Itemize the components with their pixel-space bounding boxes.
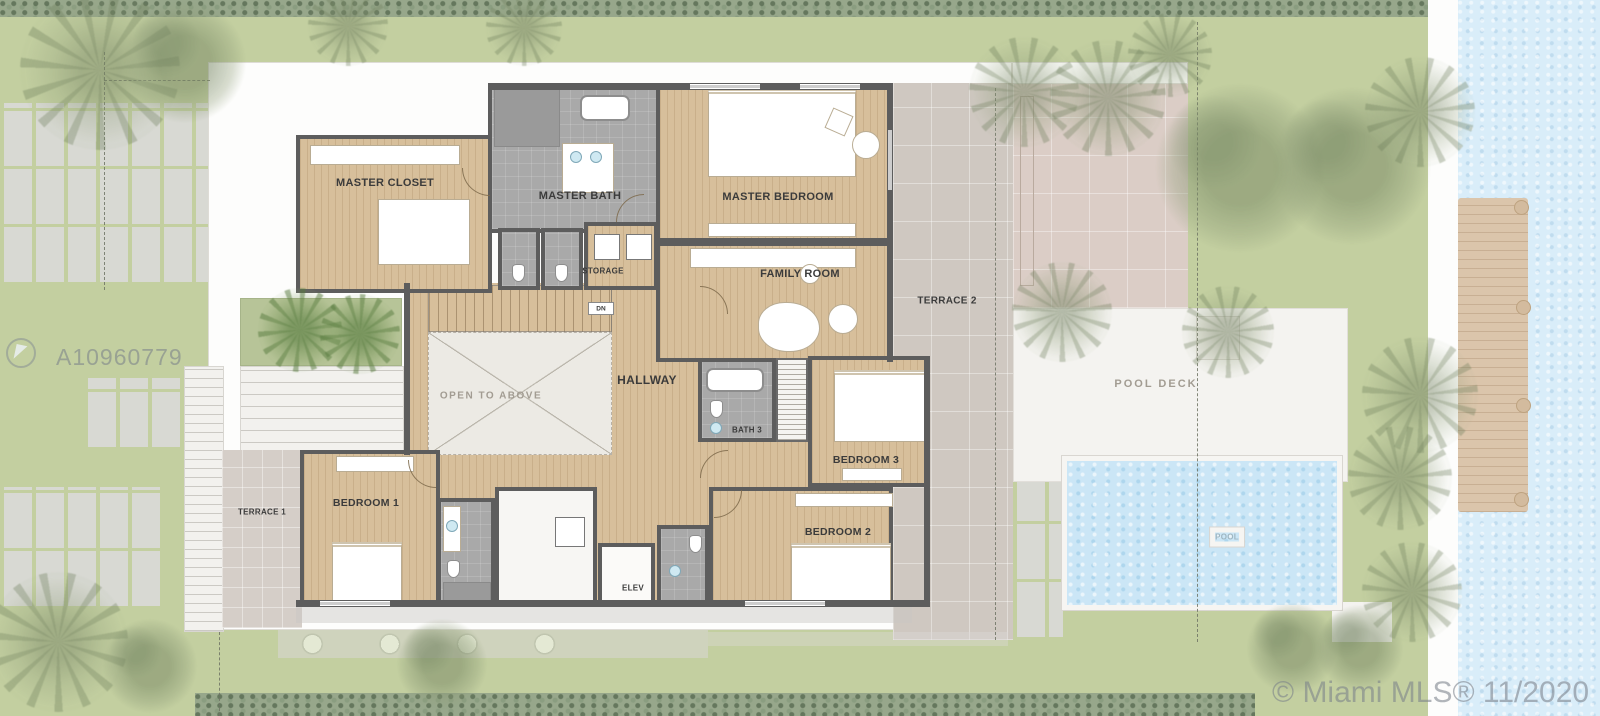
pool-deck-label: POOL DECK	[1114, 378, 1197, 390]
room-bedroom-3	[808, 356, 930, 487]
room-bath-1	[437, 498, 495, 607]
bed	[332, 542, 402, 605]
room-label-open-to-above: OPEN TO ABOVE	[440, 391, 542, 402]
toilet-icon	[555, 264, 568, 282]
media-console	[690, 248, 856, 268]
equipment-unit	[594, 234, 620, 260]
dock-piling	[1516, 398, 1531, 413]
property-line	[104, 52, 105, 290]
bathtub-icon	[706, 368, 764, 392]
room-label-master-bath: MASTER BATH	[539, 190, 622, 202]
toilet-icon	[447, 560, 460, 578]
bush-tree	[1272, 86, 1432, 246]
swimming-pool	[1062, 456, 1342, 610]
sink-icon	[669, 565, 681, 577]
sink-icon	[590, 151, 602, 163]
shower	[494, 89, 560, 147]
window	[888, 130, 892, 190]
listing-id-watermark: A10960779	[56, 344, 183, 371]
equipment-unit	[626, 234, 652, 260]
room-label-terrace-1: TERRACE 1	[238, 508, 286, 517]
room-master-bedroom	[656, 83, 893, 242]
closet-shelving	[310, 145, 460, 165]
room-label-bedroom-2: BEDROOM 2	[805, 526, 871, 538]
west-walkway	[184, 366, 224, 632]
room-master-closet	[296, 135, 492, 293]
property-line	[1197, 22, 1198, 642]
outdoor-kitchen-ghost	[278, 630, 708, 658]
double-vanity	[562, 143, 614, 193]
dock-piling	[1514, 200, 1529, 215]
wall	[296, 600, 930, 607]
sink-icon	[570, 151, 582, 163]
window	[800, 84, 860, 89]
bed	[834, 370, 926, 442]
room-label-bedroom-3: BEDROOM 3	[833, 454, 899, 466]
dresser	[842, 468, 902, 481]
room-label-bedroom-1: BEDROOM 1	[333, 497, 399, 509]
stair-dn-label: DN	[596, 306, 605, 313]
elevator	[598, 543, 655, 607]
window	[690, 84, 760, 89]
roof-band	[1012, 62, 1188, 84]
property-line	[104, 80, 210, 81]
closet	[776, 358, 808, 442]
boat-dock	[1458, 198, 1528, 512]
dresser	[795, 493, 893, 507]
driveway-pavers	[84, 378, 180, 450]
pool-side-pavers	[1013, 482, 1063, 640]
property-line	[995, 88, 996, 640]
room-label-terrace-2: TERRACE 2	[917, 296, 976, 307]
mls-logo-icon	[6, 338, 36, 368]
dock-piling	[1514, 492, 1529, 507]
courtyard-planter	[240, 298, 402, 366]
wall	[924, 356, 930, 607]
sink-icon	[710, 422, 722, 434]
room-wc	[498, 228, 540, 290]
upper-terrace-surface	[1013, 84, 1188, 308]
room-label-bath-3: BATH 3	[732, 426, 762, 435]
dock-piling	[1516, 300, 1531, 315]
pool-label: POOL	[1210, 528, 1244, 547]
wall	[404, 283, 410, 455]
deck-bridge	[240, 366, 404, 456]
room-bath-2	[657, 525, 709, 607]
toilet-icon	[710, 400, 723, 418]
room-label-elev: ELEV	[622, 584, 644, 593]
terrace-planter	[1020, 96, 1034, 286]
hedge-bottom	[195, 693, 1255, 716]
room-label-family-room: FAMILY ROOM	[760, 268, 840, 280]
room-label-master-bedroom: MASTER BEDROOM	[722, 191, 833, 203]
room-label-master-closet: MASTER CLOSET	[336, 177, 434, 189]
dresser	[336, 456, 414, 472]
hedge-top	[0, 0, 1447, 17]
lounge-chair	[828, 304, 858, 334]
room-label-storage: STORAGE	[582, 267, 624, 276]
media-console	[708, 223, 856, 237]
property-line	[219, 632, 220, 716]
terrace-1-surface	[222, 450, 302, 628]
bush-tree	[102, 618, 198, 714]
window	[745, 601, 825, 606]
lower-level-ghost	[296, 607, 912, 623]
sofa	[758, 302, 820, 352]
lower-level-ghost	[708, 632, 1008, 646]
seawall	[1428, 0, 1458, 716]
bed	[791, 543, 891, 605]
mls-credit-watermark: © Miami MLS® 11/2020	[1272, 676, 1589, 710]
palm-planter-square	[1196, 316, 1240, 360]
driveway-pavers	[0, 103, 214, 285]
window	[320, 601, 390, 606]
floor-plan-scene: MASTER CLOSET MASTER BATH MASTER BEDROOM…	[0, 0, 1600, 716]
closet-island	[378, 199, 470, 265]
bathtub-icon	[580, 95, 630, 121]
hall-closets	[495, 487, 597, 607]
armchair	[852, 131, 880, 159]
room-storage	[584, 222, 658, 290]
room-wc	[541, 228, 583, 290]
driveway-pavers	[0, 487, 162, 609]
room-label-hallway: HALLWAY	[617, 373, 677, 387]
linen-closet	[555, 517, 585, 547]
sink-icon	[446, 520, 458, 532]
room-family-room	[656, 242, 893, 362]
toilet-icon	[689, 535, 702, 553]
bed	[708, 89, 856, 177]
toilet-icon	[512, 264, 525, 282]
